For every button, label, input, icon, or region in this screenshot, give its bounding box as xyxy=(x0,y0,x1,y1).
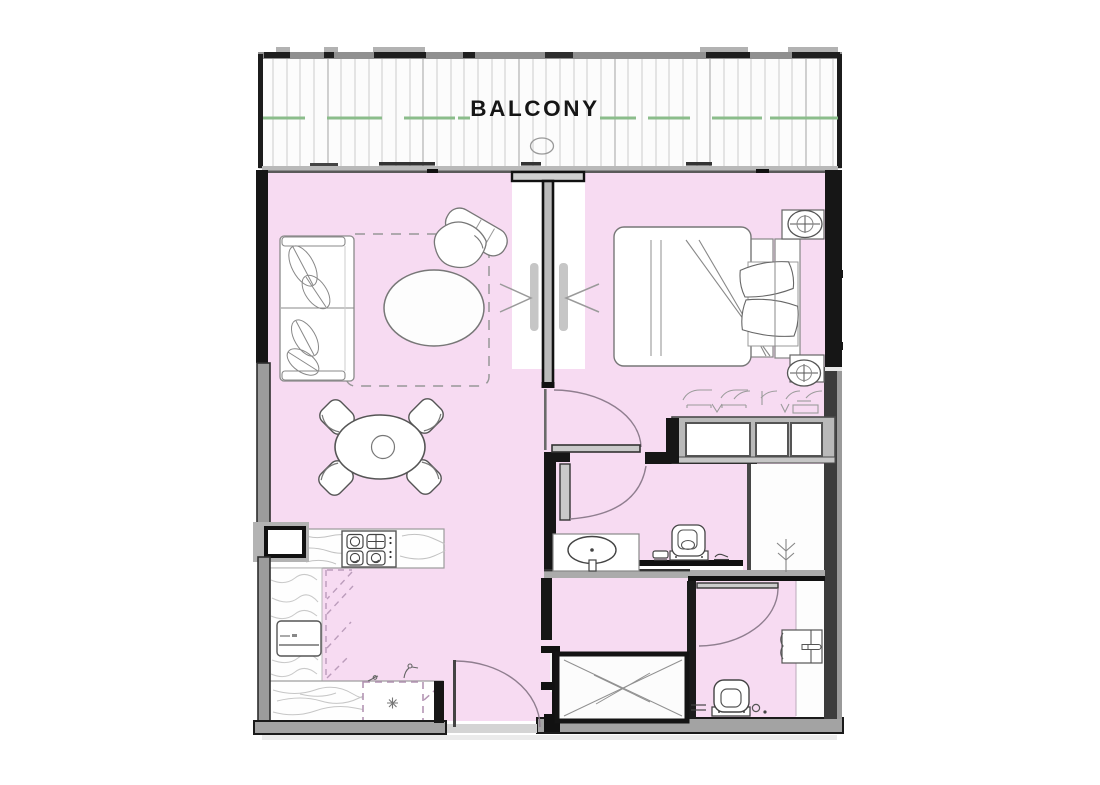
svg-text:BALCONY: BALCONY xyxy=(470,96,599,121)
